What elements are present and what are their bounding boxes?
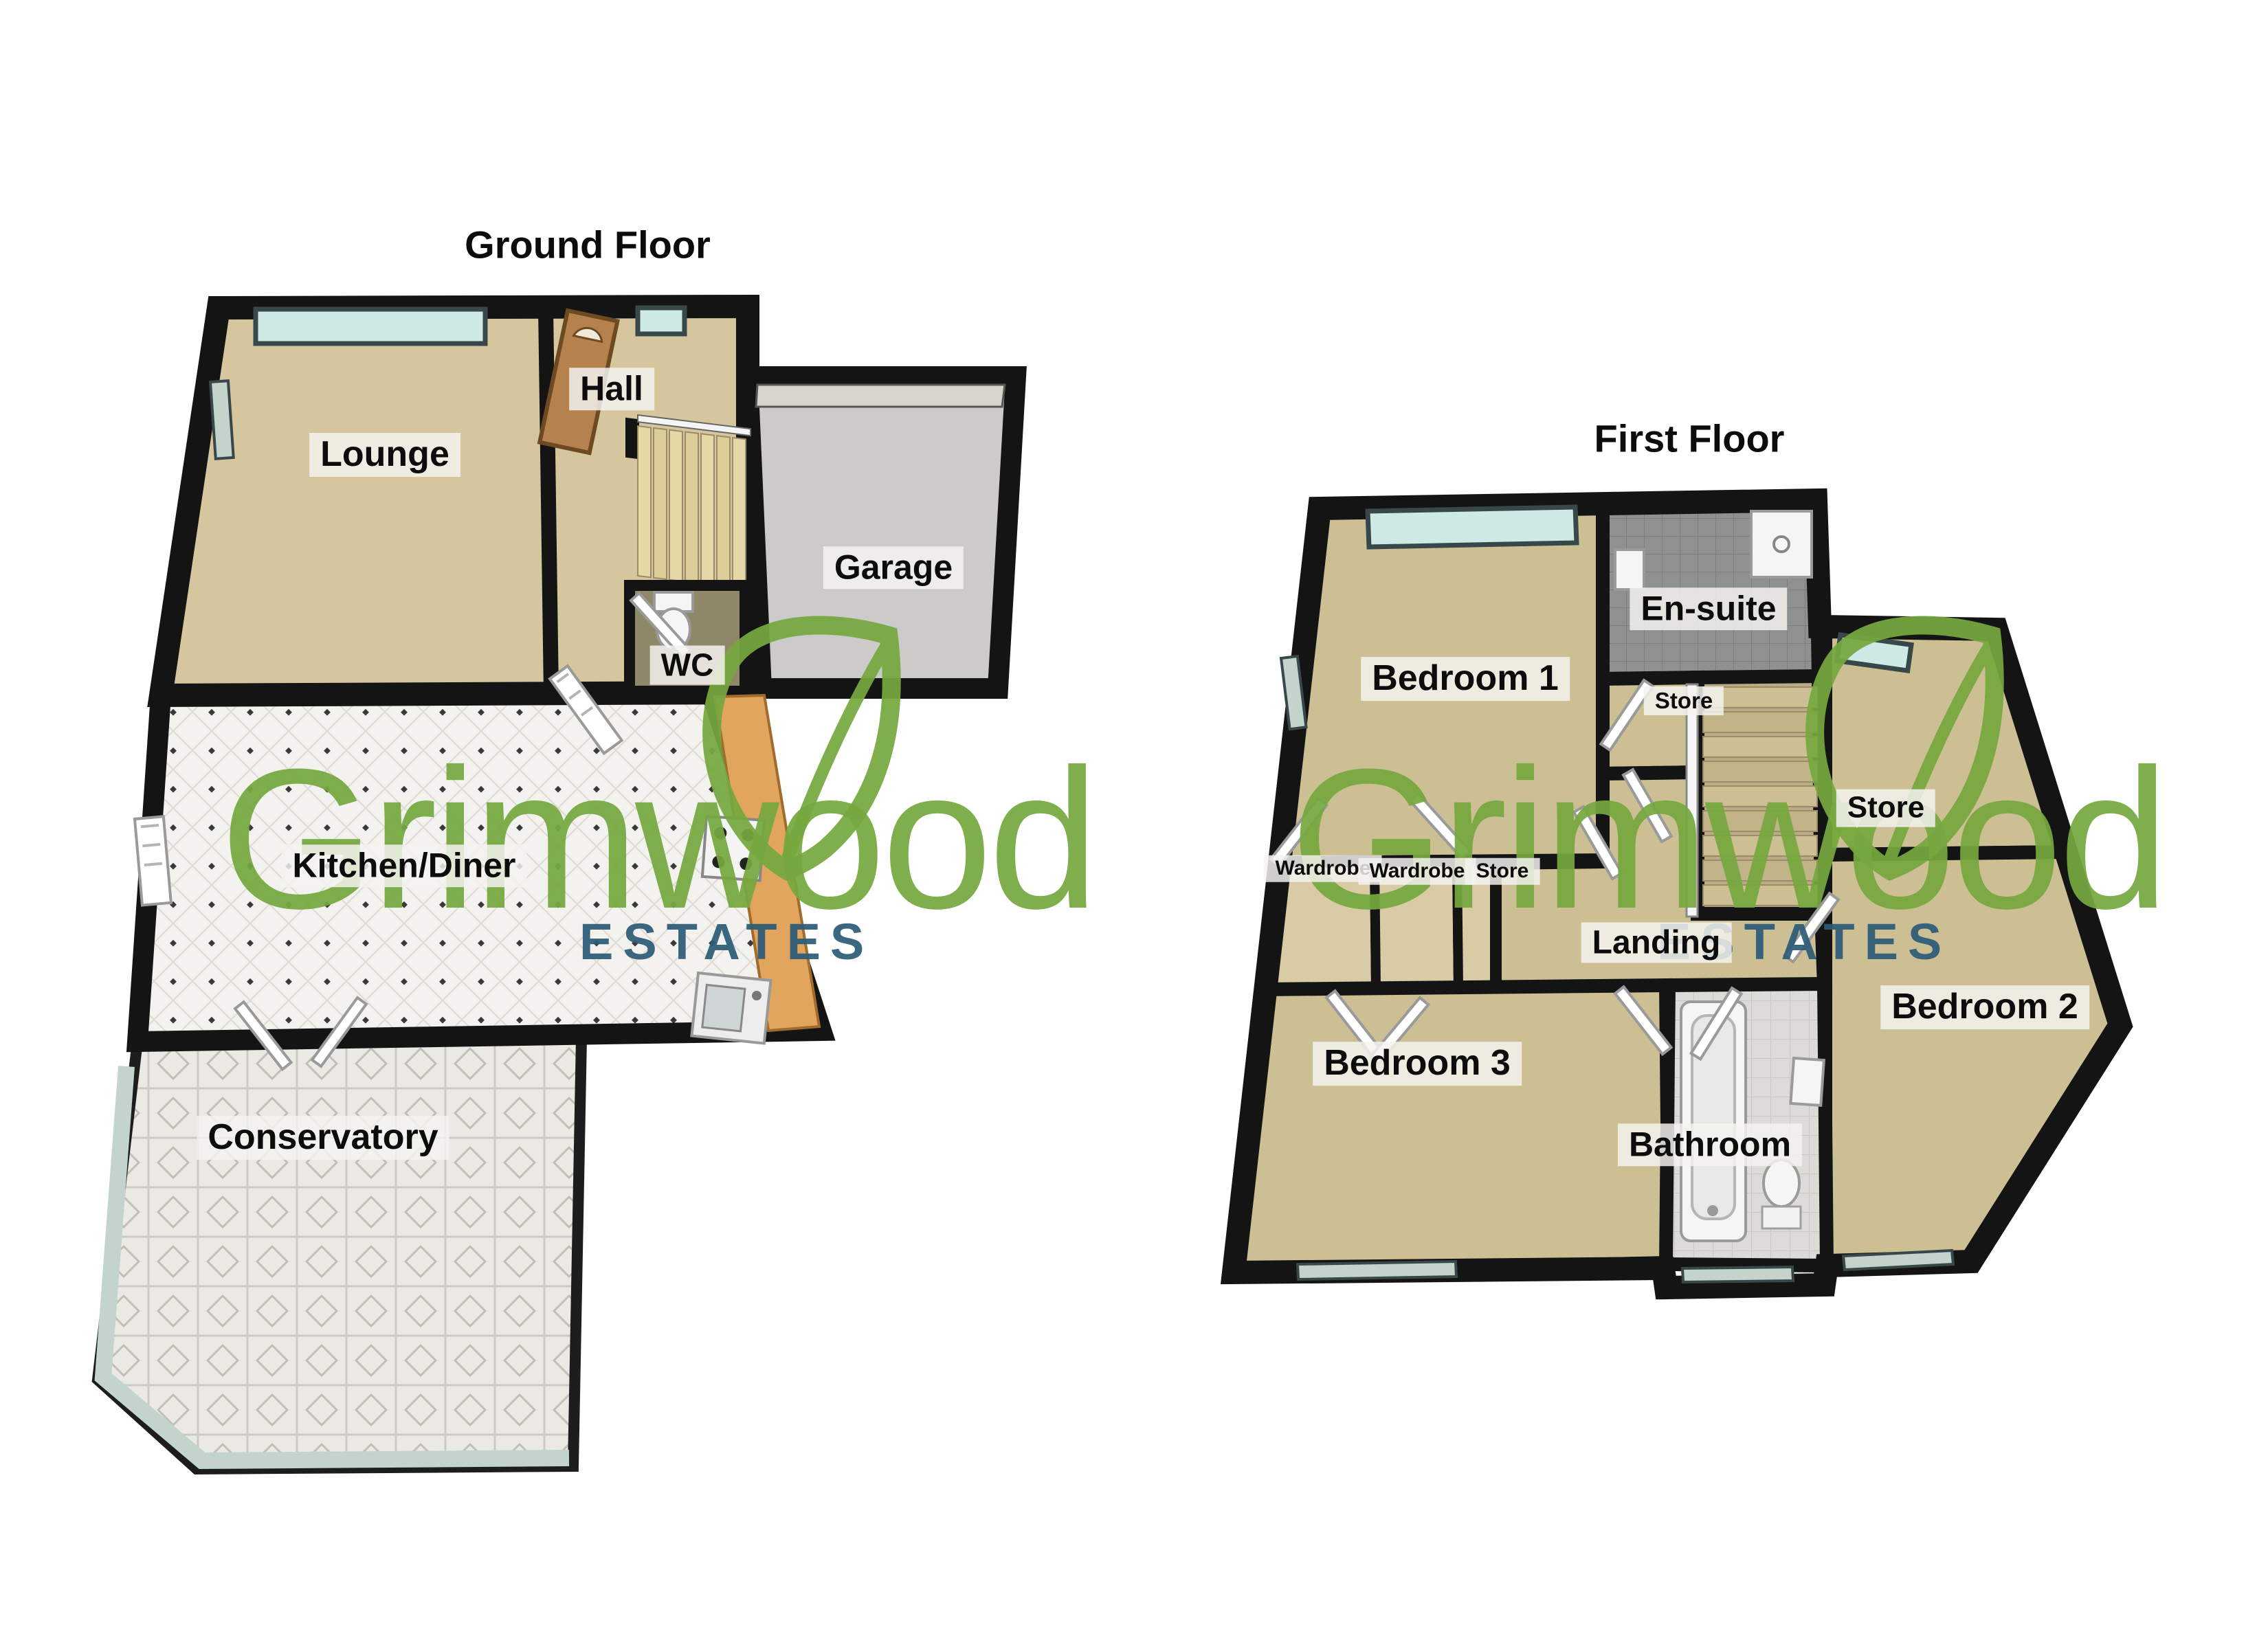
room-label-wc: WC bbox=[650, 646, 725, 685]
bathroom-toilet bbox=[1764, 1160, 1799, 1207]
lounge-side-window bbox=[210, 381, 234, 459]
kitchen-back-door bbox=[135, 816, 171, 905]
ground-floor-plan bbox=[98, 306, 1016, 1469]
room-label-hall: Hall bbox=[569, 368, 654, 410]
room-label-garage: Garage bbox=[823, 546, 964, 589]
lounge-hall-wall bbox=[546, 308, 551, 693]
room-label-wardrobe2: Wardrobe bbox=[1359, 858, 1476, 885]
ensuite-shower bbox=[1751, 511, 1812, 577]
hall-window bbox=[638, 308, 685, 334]
ground-floor-title: Ground Floor bbox=[465, 223, 711, 267]
garage-door bbox=[756, 385, 1005, 407]
bedroom3-floor bbox=[1234, 985, 1669, 1272]
room-label-bedroom2: Bedroom 2 bbox=[1880, 985, 2089, 1029]
floorplan-canvas: Grimwood ESTATES Grimwood ESTATES Ground… bbox=[0, 0, 2268, 1649]
bathroom-window bbox=[1682, 1267, 1793, 1282]
room-label-ensuite: En-suite bbox=[1630, 587, 1787, 630]
room-label-lounge: Lounge bbox=[309, 433, 460, 477]
bedroom3-window bbox=[1298, 1261, 1456, 1279]
lounge-window bbox=[256, 309, 485, 344]
room-label-bedroom3: Bedroom 3 bbox=[1313, 1042, 1522, 1086]
ensuite-sink bbox=[1615, 550, 1644, 590]
kitchen-sink bbox=[691, 973, 770, 1044]
bathroom-cistern bbox=[1762, 1207, 1801, 1229]
bathroom-sink bbox=[1790, 1058, 1823, 1106]
room-label-store-right: Store bbox=[1836, 789, 1935, 827]
room-label-conservatory: Conservatory bbox=[197, 1116, 449, 1160]
room-label-bedroom1: Bedroom 1 bbox=[1361, 657, 1570, 701]
room-label-landing: Landing bbox=[1581, 922, 1732, 963]
room-label-store-small: Store bbox=[1644, 686, 1724, 715]
room-label-store-wardrobe-row: Store bbox=[1465, 858, 1540, 885]
conservatory-floor bbox=[98, 1039, 581, 1469]
room-label-kitchen-diner: Kitchen/Diner bbox=[281, 844, 526, 887]
bedroom1-window bbox=[1368, 507, 1577, 547]
room-label-bathroom: Bathroom bbox=[1618, 1123, 1802, 1166]
first-floor-title: First Floor bbox=[1594, 416, 1785, 461]
bathtub-tap bbox=[1707, 1205, 1718, 1216]
